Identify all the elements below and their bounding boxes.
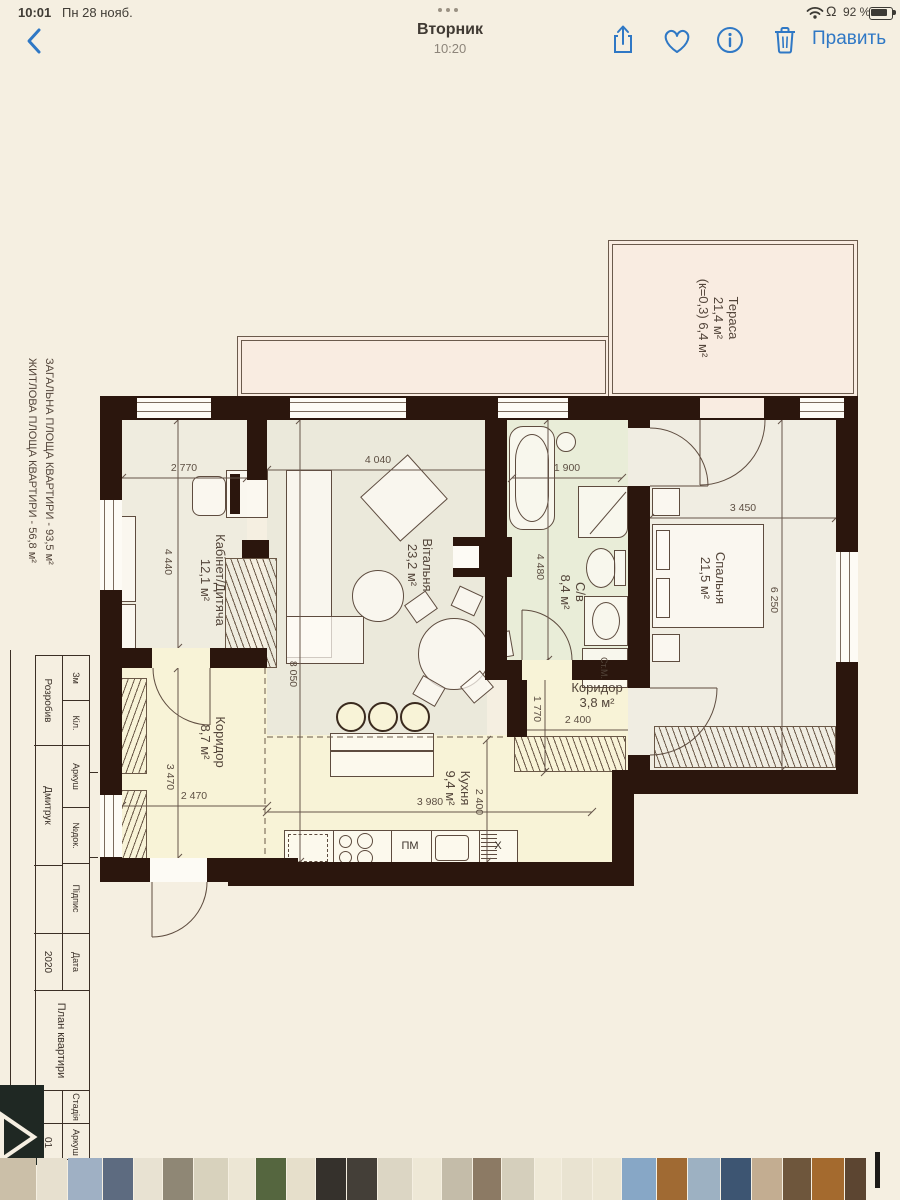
filmstrip [0, 1158, 866, 1200]
dim-bedroom-height: 6 250 [768, 578, 780, 622]
photo-thumbnail[interactable] [229, 1158, 255, 1200]
window [290, 398, 406, 418]
window [137, 398, 211, 418]
photo-thumbnail[interactable] [721, 1158, 751, 1200]
room-label-living: Вітальня23,2 м² [405, 520, 435, 610]
photo-thumbnail[interactable] [535, 1158, 561, 1200]
photo-thumbnail[interactable] [502, 1158, 534, 1200]
photo-thumbnail[interactable] [287, 1158, 315, 1200]
fridge-label: Х [482, 840, 514, 852]
photo-thumbnail[interactable] [657, 1158, 687, 1200]
photo-thumbnail[interactable] [68, 1158, 102, 1200]
tb-header-arkush: Аркуш [62, 746, 89, 808]
photo-thumbnail[interactable] [473, 1158, 501, 1200]
dim-hall-small-height: 1 770 [531, 687, 543, 731]
photo-thumbnail[interactable] [752, 1158, 782, 1200]
photo-thumbnail[interactable] [316, 1158, 346, 1200]
tb-header-doc: №док. [62, 808, 89, 864]
dim-hall-small-width: 2 400 [548, 714, 608, 726]
dim-hall-height: 3 470 [164, 755, 176, 799]
tb-header-data: Дата [62, 934, 89, 991]
room-label-terrace: Тераса21,4 м²(к=0,3) 6,4 м² [696, 263, 741, 373]
tb-header-kil: Кіл. [62, 701, 89, 746]
wall [122, 648, 152, 668]
window [100, 795, 122, 857]
plan-linework [0, 0, 900, 1200]
washing-machine-label: Ст.М. [596, 651, 611, 685]
photo-thumbnail[interactable] [347, 1158, 377, 1200]
window [800, 398, 844, 418]
tb-header-zm: Зм [62, 656, 89, 701]
wall [485, 660, 522, 680]
dim-living-height: 8 050 [287, 652, 299, 696]
wall [628, 418, 650, 428]
photo-thumbnail[interactable] [37, 1158, 67, 1200]
photo-thumbnail[interactable] [622, 1158, 656, 1200]
photo-thumbnail[interactable] [812, 1158, 844, 1200]
tb-header-pidpys: Підпис [62, 864, 89, 934]
photo-thumbnail[interactable] [562, 1158, 592, 1200]
bath-door-opening [522, 660, 572, 680]
wall [612, 770, 858, 794]
wall [242, 540, 269, 558]
photo-thumbnail[interactable] [783, 1158, 811, 1200]
office-door-opening [152, 648, 210, 668]
wall [485, 418, 507, 537]
room-label-kitchen: Кухня9,4 м² [443, 753, 473, 823]
terrace-door-opening [700, 398, 764, 418]
wall [612, 770, 634, 886]
dim-office-width: 2 770 [154, 462, 214, 474]
wall [247, 418, 267, 480]
tb-author: Дмитрук [34, 746, 62, 866]
niche-opening [453, 546, 479, 568]
window [498, 398, 568, 418]
tb-year: 2020 [34, 934, 62, 991]
dim-kitchen-height: 2 400 [473, 780, 485, 824]
wall [507, 680, 527, 737]
tb-role: Розробив [34, 656, 62, 746]
photo-thumbnail[interactable] [194, 1158, 228, 1200]
tb-stage-label: Стадія [62, 1091, 89, 1124]
window [100, 500, 122, 590]
dim-bedroom-width: 3 450 [713, 502, 773, 514]
photo-thumbnail[interactable] [413, 1158, 441, 1200]
wall [210, 648, 267, 668]
photo-thumbnail[interactable] [593, 1158, 621, 1200]
current-photo-indicator[interactable] [875, 1152, 880, 1188]
room-label-bath: С/в8,4 м² [558, 557, 588, 627]
sheet-logo [0, 1085, 44, 1165]
entrance-door-opening [150, 858, 207, 882]
wall [228, 862, 616, 886]
dim-bath-width: 1 900 [537, 462, 597, 474]
photo-thumbnail[interactable] [103, 1158, 133, 1200]
room-label-office: Кабінет/Дитяча12,1 м² [198, 520, 228, 640]
photos-app-screen: 10:01 Пн 28 нояб. Ω 92 % Вторник 10:20 П… [0, 0, 900, 1200]
tb-sheet-label: Аркуш [62, 1124, 89, 1161]
dim-office-height: 4 440 [162, 540, 174, 584]
photo-thumbnail[interactable] [688, 1158, 720, 1200]
tb-empty [34, 866, 62, 934]
wall [628, 486, 650, 688]
dim-living-width: 4 040 [348, 454, 408, 466]
photo-thumbnail[interactable] [845, 1158, 866, 1200]
photo-thumbnail[interactable] [0, 1158, 36, 1200]
photo-thumbnail[interactable] [378, 1158, 412, 1200]
dishwasher-label: ПМ [390, 840, 430, 852]
room-label-hall: Коридор8,7 м² [198, 702, 228, 782]
wall [628, 755, 650, 770]
photo-thumbnail[interactable] [256, 1158, 286, 1200]
window [836, 552, 858, 662]
tb-doc-title: План квартири [34, 991, 89, 1091]
dim-bath-height: 4 480 [534, 545, 546, 589]
photo-thumbnail[interactable] [163, 1158, 193, 1200]
photo-thumbnail[interactable] [442, 1158, 472, 1200]
ensuite-door-opening [628, 428, 650, 486]
dim-kitchen-width: 3 980 [400, 796, 460, 808]
room-label-bedroom: Спальня21,5 м² [698, 533, 728, 623]
photo-thumbnail[interactable] [134, 1158, 162, 1200]
